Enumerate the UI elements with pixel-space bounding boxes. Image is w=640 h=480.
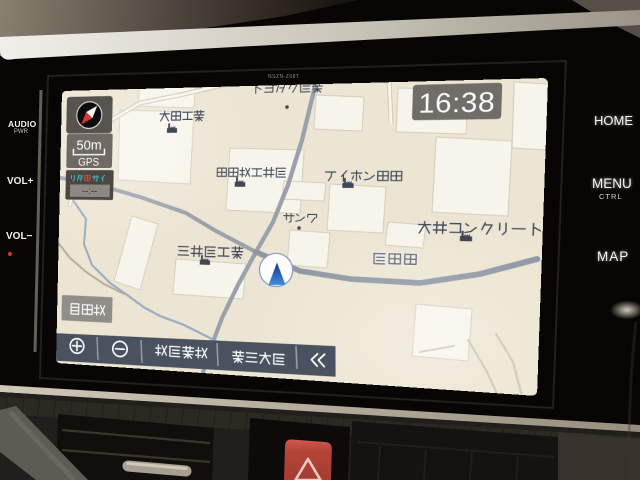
svg-text:16:38: 16:38 — [418, 87, 496, 119]
svg-text:GPS: GPS — [78, 157, 99, 169]
svg-text:--:--: --:-- — [82, 186, 98, 198]
svg-text:50m: 50m — [76, 137, 102, 153]
